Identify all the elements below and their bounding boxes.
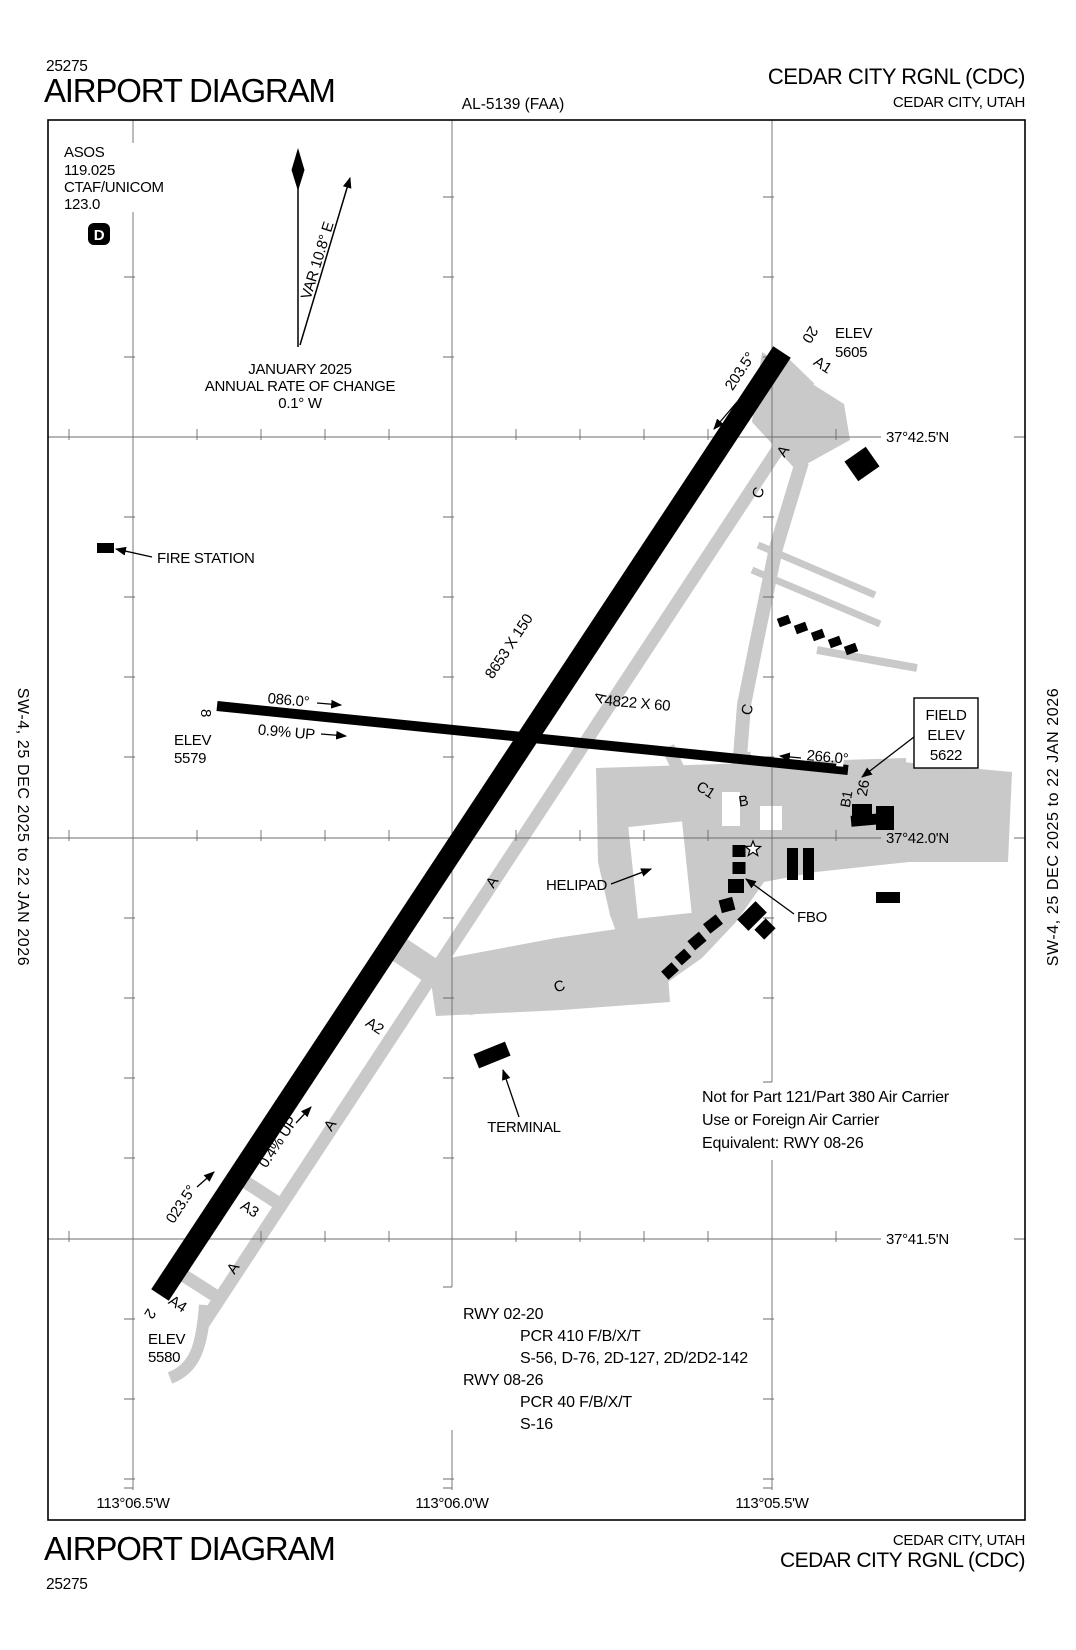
fire-station-building bbox=[97, 543, 114, 553]
t-hangar-1 bbox=[777, 615, 791, 628]
apron-building-2 bbox=[803, 848, 814, 880]
north-arrow-assembly: VAR 10.8° E bbox=[292, 148, 351, 347]
fire-station-label: FIRE STATION bbox=[157, 550, 255, 567]
rwy1-ratings: S-56, D-76, 2D-127, 2D/2D2-142 bbox=[520, 1350, 748, 1367]
runway-02-20-dimensions: 8653 X 150 bbox=[482, 611, 537, 682]
hangar-row-1 bbox=[733, 845, 746, 857]
runway-end-2: 2 bbox=[140, 1305, 159, 1321]
elev-2-label: ELEV bbox=[148, 1331, 185, 1348]
fbo-label: FBO bbox=[797, 909, 827, 926]
runway-end-20: 20 bbox=[798, 323, 821, 346]
asos-label: ASOS bbox=[64, 144, 105, 161]
fire-station-arrow bbox=[116, 549, 152, 557]
rate-value: 0.1° W bbox=[278, 395, 323, 412]
east-building-1 bbox=[852, 804, 872, 817]
rwy1-pcr: PCR 410 F/B/X/T bbox=[520, 1328, 641, 1345]
gradient-04-arrow bbox=[296, 1107, 311, 1123]
rate-label: ANNUAL RATE OF CHANGE bbox=[205, 378, 396, 395]
taxiway-pavement bbox=[170, 352, 1012, 1378]
heading-086-arrow bbox=[317, 703, 341, 705]
heading-266-arrow bbox=[780, 756, 801, 758]
elev-2-value: 5580 bbox=[148, 1349, 180, 1366]
runway-data-block: RWY 02-20 PCR 410 F/B/X/T S-56, D-76, 2D… bbox=[463, 1306, 748, 1433]
east-apron bbox=[902, 762, 1012, 862]
elev-20-label: ELEV bbox=[835, 325, 872, 342]
rwy2-ratings: S-16 bbox=[520, 1416, 553, 1433]
terminal-building bbox=[473, 1042, 510, 1069]
runway-08-26-dimensions: 4822 X 60 bbox=[604, 692, 671, 715]
hangar-row-3 bbox=[728, 879, 744, 893]
service-road-3 bbox=[817, 650, 917, 668]
lon-label-3: 113°05.5'W bbox=[735, 1495, 809, 1512]
taxiway-a1-label: A1 bbox=[810, 353, 834, 377]
variation-label: VAR 10.8° E bbox=[298, 220, 338, 302]
rate-of-change-note: JANUARY 2025 ANNUAL RATE OF CHANGE 0.1° … bbox=[205, 361, 396, 412]
carrier-note: Not for Part 121/Part 380 Air Carrier Us… bbox=[702, 1089, 950, 1152]
gradient-09-label: 0.9% UP bbox=[257, 722, 316, 744]
rwy2-id: RWY 08-26 bbox=[463, 1372, 544, 1389]
field-elevation-box: FIELD ELEV 5622 bbox=[914, 698, 978, 768]
field-elev-line3: 5622 bbox=[930, 747, 962, 764]
class-d-letter: D bbox=[94, 227, 105, 244]
rwy2-pcr: PCR 40 F/B/X/T bbox=[520, 1394, 632, 1411]
terminal-label: TERMINAL bbox=[487, 1119, 560, 1136]
runway-end-26: 26 bbox=[854, 779, 874, 798]
taxiway-a2-label: A2 bbox=[362, 1014, 386, 1038]
carrier-note-line3: Equivalent: RWY 08-26 bbox=[702, 1135, 864, 1152]
asos-frequency: 119.025 bbox=[64, 162, 115, 179]
heading-023-label: 023.5° bbox=[163, 1182, 200, 1226]
lat-label-2: 37°42.0'N bbox=[886, 830, 949, 847]
taxiway-b1-label: B1 bbox=[837, 789, 856, 809]
heading-023-arrow bbox=[197, 1172, 214, 1187]
helipad-label: HELIPAD bbox=[546, 877, 607, 894]
elev-8-label: ELEV bbox=[174, 732, 211, 749]
ctaf-frequency: 123.0 bbox=[64, 196, 100, 213]
north-hangar bbox=[844, 447, 879, 482]
comms-info: ASOS 119.025 CTAF/UNICOM 123.0 D bbox=[64, 144, 164, 245]
airport-diagram-page: { "header": { "chart_number": "25275", "… bbox=[0, 0, 1076, 1650]
lon-label-2: 113°06.0'W bbox=[415, 1495, 489, 1512]
hangar-row-2 bbox=[733, 862, 746, 874]
ctaf-label: CTAF/UNICOM bbox=[64, 179, 164, 196]
field-elev-line2: ELEV bbox=[927, 727, 964, 744]
lon-label-1: 113°06.5'W bbox=[96, 1495, 170, 1512]
t-hangar-4 bbox=[828, 636, 842, 649]
airport-map: VAR 10.8° E ASOS 119.025 CTAF/UNICOM 123… bbox=[0, 0, 1076, 1650]
lat-label-1: 37°42.5'N bbox=[886, 429, 949, 446]
helipad-pad bbox=[628, 821, 691, 918]
apron-notch-2 bbox=[760, 806, 782, 830]
lat-label-3: 37°41.5'N bbox=[886, 1231, 949, 1248]
east-building-2 bbox=[876, 806, 894, 830]
elev-20-value: 5605 bbox=[835, 344, 867, 361]
apron-building-3 bbox=[876, 892, 900, 903]
north-arrow-head-icon bbox=[292, 148, 305, 191]
taxiway-c-north-pavement bbox=[739, 462, 802, 770]
runway-end-8: 8 bbox=[197, 709, 214, 717]
gradient-09-arrow bbox=[321, 734, 346, 736]
elev-8-value: 5579 bbox=[174, 750, 206, 767]
variation-month: JANUARY 2025 bbox=[248, 361, 351, 378]
t-hangar-3 bbox=[811, 629, 825, 642]
rwy1-id: RWY 02-20 bbox=[463, 1306, 544, 1323]
carrier-note-line1: Not for Part 121/Part 380 Air Carrier bbox=[702, 1089, 950, 1106]
t-hangar-2 bbox=[794, 622, 808, 635]
apron-building-1 bbox=[787, 848, 798, 880]
carrier-note-line2: Use or Foreign Air Carrier bbox=[702, 1112, 880, 1129]
taxiway-a3-label: A3 bbox=[237, 1197, 261, 1221]
terminal-arrow bbox=[503, 1070, 519, 1117]
field-elev-line1: FIELD bbox=[925, 707, 966, 724]
